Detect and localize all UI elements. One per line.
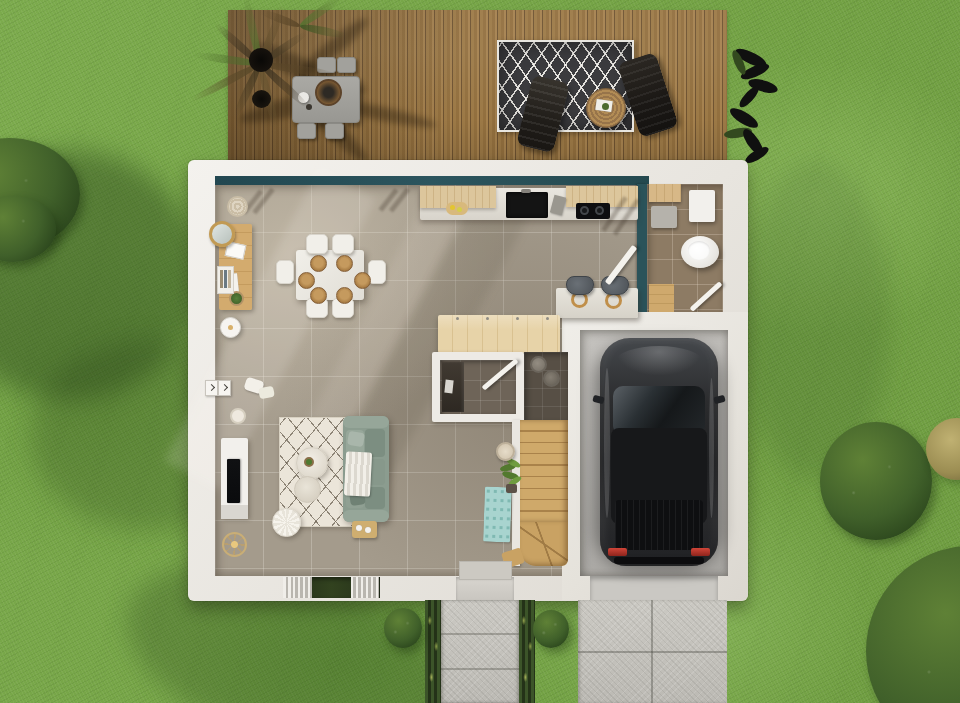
fruit-board <box>446 202 468 215</box>
small-basket <box>230 408 246 424</box>
pendant-lamp-wire <box>222 532 247 557</box>
arrow-icon <box>208 384 215 391</box>
knitted-pouf <box>272 508 301 537</box>
bathroom-cabinet <box>651 206 677 228</box>
bush-path-right <box>533 610 569 648</box>
burner <box>580 206 589 215</box>
staircase-winder <box>520 522 568 566</box>
staircase-steps <box>520 420 568 522</box>
burner <box>595 206 604 215</box>
bathroom-storage-column <box>689 190 715 222</box>
wicker-seat <box>298 272 315 289</box>
hanging-garment <box>444 380 453 394</box>
garage-door-opening <box>590 576 718 601</box>
kitchen-island <box>556 288 638 318</box>
driveway <box>578 600 727 703</box>
potted-plant <box>252 90 271 108</box>
paver-joint <box>441 668 519 670</box>
cup <box>356 525 362 531</box>
palm-tree <box>196 0 346 135</box>
kitchen-sink <box>506 192 548 218</box>
kitchen-faucet <box>521 189 531 193</box>
toilet <box>681 236 719 268</box>
book <box>228 270 231 288</box>
planting-strip-right <box>519 600 535 703</box>
woven-basket <box>227 196 248 217</box>
dining-chair <box>306 234 328 254</box>
table-plant <box>304 457 314 467</box>
lemon <box>457 207 462 212</box>
paver-joint <box>578 651 727 653</box>
window-louver-panel <box>283 577 312 598</box>
plant-pot <box>506 484 517 493</box>
wicker-seat <box>310 255 327 272</box>
bathroom-vanity-top <box>649 184 681 202</box>
dining-chair <box>332 234 354 254</box>
planting-strip-left <box>425 600 441 703</box>
wicker-seat <box>354 272 371 289</box>
knob <box>516 317 519 320</box>
dining-chair <box>276 260 294 284</box>
sofa-armrest <box>343 416 389 428</box>
wicker-seat <box>336 287 353 304</box>
car-taillight-right <box>691 548 710 556</box>
arrow-art-frame <box>205 380 218 396</box>
round-appliance <box>530 356 547 373</box>
teal-accent-wall-top <box>215 176 649 185</box>
bush-path-left <box>384 608 422 648</box>
toilet-lid <box>688 241 710 260</box>
bathroom-wood-shelf <box>649 284 674 312</box>
car-hood-reflection <box>616 346 702 376</box>
flat-tv <box>227 459 240 503</box>
striped-blanket <box>344 451 372 496</box>
wood-bar-counter <box>438 315 560 353</box>
car-taillight-left <box>608 548 627 556</box>
book <box>220 270 223 288</box>
door-mat <box>459 561 512 580</box>
wicker-seat <box>310 287 327 304</box>
book <box>224 270 227 288</box>
car-windshield <box>613 386 705 432</box>
round-bush-right <box>820 422 932 540</box>
side-table <box>352 521 377 538</box>
wicker-seat <box>336 255 353 272</box>
bulb <box>228 325 233 330</box>
coffee-table <box>294 476 321 503</box>
car-rear-window <box>615 500 703 550</box>
potted-plant <box>249 48 273 72</box>
paver-joint <box>441 633 519 635</box>
pendant-lamp <box>220 317 241 338</box>
car-bumper <box>614 557 704 564</box>
front-path <box>441 600 519 703</box>
front-door-recess <box>456 577 514 600</box>
round-appliance <box>543 370 560 387</box>
knob <box>486 317 489 320</box>
round-wall-mirror <box>209 221 235 247</box>
wall-shelf <box>217 266 234 294</box>
tv-unit-shelf <box>221 505 248 519</box>
knob <box>456 317 459 320</box>
arrow-icon <box>221 384 228 391</box>
bar-stool <box>566 276 594 295</box>
round-basket <box>496 442 515 461</box>
floor-plan-render <box>0 0 960 703</box>
arrow-art-frame <box>218 380 231 396</box>
window-louver-panel <box>351 577 379 598</box>
car-top-view <box>600 338 718 566</box>
plant-sprig <box>602 103 609 110</box>
knob <box>546 317 549 320</box>
cooktop <box>576 203 610 219</box>
throw-pillow <box>347 431 365 448</box>
lemon <box>450 205 455 210</box>
car-side-reflection <box>604 368 610 518</box>
cup <box>365 527 371 533</box>
